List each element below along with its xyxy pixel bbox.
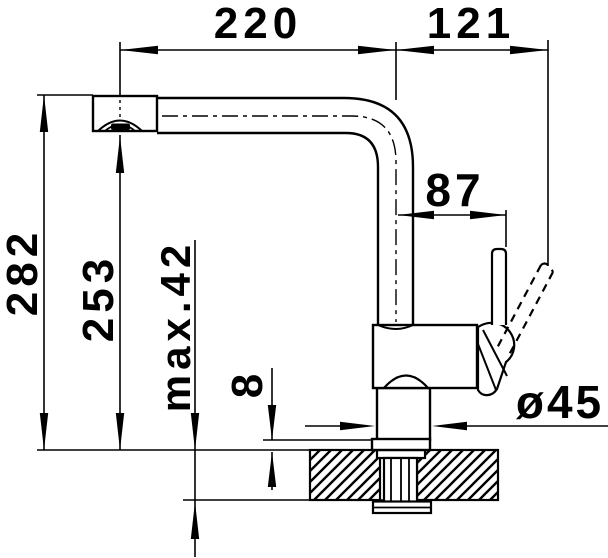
- countertop-hatch-right: [417, 450, 498, 500]
- arrowhead: [191, 502, 199, 539]
- dim-label-spout-reach: 220: [214, 0, 302, 48]
- arrowhead: [358, 46, 396, 54]
- dim-label-overall-height: 282: [0, 228, 47, 316]
- base-neck: [377, 388, 430, 440]
- aerator-slot: [111, 124, 130, 131]
- mixer-body: [373, 325, 477, 388]
- arrowhead: [510, 46, 548, 54]
- base-plate: [372, 439, 430, 450]
- dimension-labels: 220 121 87 282 253 max.42 8 ø45: [0, 0, 604, 428]
- drawing-canvas: 220 121 87 282 253 max.42 8 ø45: [0, 0, 608, 558]
- dim-label-handle-span: 121: [427, 0, 515, 48]
- arrowhead: [268, 405, 276, 440]
- dim-label-outlet-height: 253: [74, 254, 123, 342]
- countertop-section: [37, 450, 498, 500]
- arrowhead: [116, 136, 124, 173]
- faucet-body: [93, 96, 477, 450]
- lever-handle: [478, 249, 553, 395]
- arrowhead: [116, 413, 124, 450]
- dim-label-base-plate-height: 8: [223, 374, 272, 398]
- arrowhead: [340, 422, 375, 430]
- faucet-dimension-drawing: 220 121 87 282 253 max.42 8 ø45: [0, 0, 608, 558]
- countertop-hatch-left: [310, 450, 380, 500]
- arrowhead: [191, 413, 199, 450]
- arrowhead: [40, 95, 48, 132]
- mounting-washer: [377, 450, 425, 458]
- dim-label-base-diameter: ø45: [516, 376, 604, 428]
- lever-upright-position: [492, 249, 506, 325]
- dim-label-max-deck-thickness: max.42: [152, 240, 199, 412]
- arrowhead: [268, 452, 276, 487]
- arrowhead: [40, 413, 48, 450]
- dim-label-handle-offset: 87: [425, 164, 484, 216]
- arrowhead: [120, 46, 158, 54]
- arrowhead: [432, 422, 467, 430]
